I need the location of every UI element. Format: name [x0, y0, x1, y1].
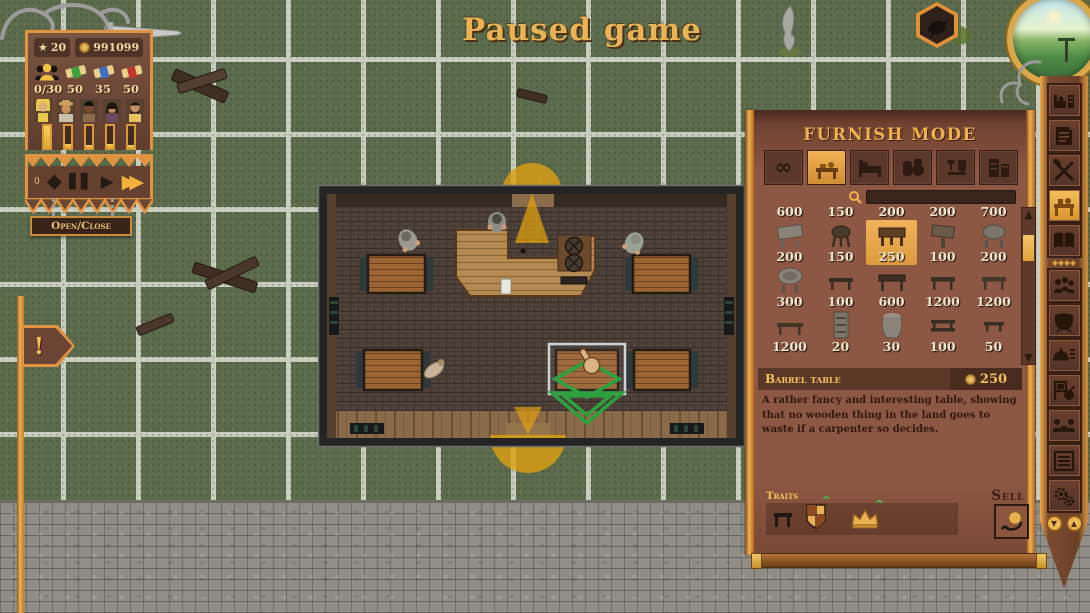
staff-energy-meter — [84, 124, 94, 150]
guests-icon[interactable] — [1047, 408, 1082, 443]
furniture-item[interactable]: 100 — [917, 310, 968, 355]
build-tools-icon[interactable] — [1047, 153, 1082, 188]
tab-storage[interactable] — [979, 150, 1018, 185]
table[interactable] — [360, 255, 433, 293]
right-toolbar: ▼ ▲ — [1040, 76, 1088, 588]
staff-portrait[interactable] — [57, 99, 75, 122]
staff-energy-meter — [126, 124, 136, 150]
furniture-item[interactable]: 200 — [764, 220, 815, 265]
blueprint-icon[interactable] — [1047, 118, 1082, 153]
search-icon — [848, 190, 862, 204]
tab-decorations[interactable] — [936, 150, 975, 185]
staff-icon[interactable] — [1047, 268, 1082, 303]
hud-speed-controls: 0 ■ ▋▋ ▶ ▶▶ — [25, 166, 153, 198]
sell-button[interactable] — [994, 504, 1029, 539]
patrons-icon — [34, 63, 60, 81]
grid-row: 300 100 600 1200 1200 — [764, 265, 1020, 310]
open-close-button[interactable]: Open/Close — [30, 216, 132, 236]
grid-row: 200 150 250 100 200 — [764, 220, 1020, 265]
grid-row: 600 150 200 200 700 — [764, 207, 1020, 220]
game-viewport: Paused game — [0, 0, 1090, 613]
table[interactable] — [625, 255, 698, 293]
sign-chains — [52, 198, 114, 216]
recipes-book-icon[interactable] — [1047, 223, 1082, 258]
silver-filigree — [990, 58, 1046, 110]
hud-banner: ★ 20 991099 — [25, 30, 153, 214]
table[interactable] — [626, 350, 698, 390]
tab-kegs[interactable] — [893, 150, 932, 185]
panel-rail-left — [745, 110, 754, 555]
furniture-item-selected[interactable]: 250 — [866, 220, 917, 265]
beer-kegs[interactable] — [558, 235, 591, 284]
coin-icon — [965, 374, 976, 385]
staff-portrait[interactable] — [80, 99, 98, 122]
toolbar-up-button[interactable]: ▲ — [1066, 515, 1083, 532]
furniture-grid: 600 150 200 200 700 — [764, 207, 1020, 365]
play-button[interactable]: ▶ — [101, 174, 114, 191]
sell-label: Sell — [982, 488, 1034, 504]
tavern-building[interactable] — [318, 185, 745, 447]
wood-debris — [514, 84, 552, 108]
furniture-item[interactable]: 100 — [815, 265, 866, 310]
trait-comfort: ^ — [805, 503, 827, 533]
furniture-item[interactable]: 150 — [815, 220, 866, 265]
staff-portrait[interactable] — [34, 99, 52, 122]
pause-button[interactable]: ▋▋ — [69, 175, 93, 189]
grid-scrollbar[interactable]: ▲ ▼ — [1021, 207, 1036, 365]
gold-box: 991099 — [75, 38, 143, 57]
patrons-count: 0/30 — [34, 82, 60, 96]
selected-item-price: 250 — [980, 372, 1007, 387]
furnish-mode-panel: FURNISH MODE ∞ — [745, 110, 1035, 568]
tab-beds[interactable] — [850, 150, 889, 185]
settings-icon[interactable] — [1047, 478, 1082, 513]
table[interactable] — [356, 350, 430, 390]
furniture-item[interactable]: 200 — [866, 207, 917, 220]
furniture-item[interactable]: 30 — [866, 310, 917, 355]
coin-icon — [79, 42, 90, 53]
furniture-item[interactable]: 50 — [968, 310, 1019, 355]
staff-energy-meter — [42, 124, 52, 150]
search-row — [764, 190, 1016, 204]
traits-bar: ^ ^ — [766, 503, 958, 535]
furniture-item[interactable]: 1200 — [917, 265, 968, 310]
menu-icon[interactable] — [1047, 338, 1082, 373]
minimap-sun — [1043, 6, 1065, 28]
furniture-item[interactable]: 1200 — [764, 310, 815, 355]
scroll-up-icon[interactable]: ▲ — [1024, 208, 1032, 221]
wall-vent — [329, 297, 339, 335]
gold-value: 991099 — [93, 41, 139, 54]
paused-game-title: Paused game — [452, 12, 712, 48]
blue-scroll-count: 35 — [90, 82, 116, 96]
category-tabs: ∞ — [764, 150, 1018, 185]
green-scroll-icon — [64, 63, 88, 81]
floor-grate — [670, 423, 704, 434]
open-close-label: Open/Close — [51, 220, 111, 232]
stop-button[interactable]: ■ — [45, 172, 64, 191]
furniture-item[interactable]: 300 — [764, 265, 815, 310]
toolbar-scroll-arrows: ▼ ▲ — [1046, 515, 1083, 532]
selected-item-name-box: Barrel table — [758, 368, 950, 390]
grid-row: 1200 20 30 100 50 — [764, 310, 1020, 355]
red-scroll-icon — [120, 63, 144, 81]
furniture-item[interactable]: 20 — [815, 310, 866, 355]
selected-item-bar: Barrel table 250 — [758, 368, 1022, 390]
traits-label: Traits — [766, 491, 798, 502]
selected-item-name: Barrel table — [765, 372, 841, 386]
furniture-item[interactable]: 1200 — [968, 265, 1019, 310]
tab-tables[interactable] — [807, 150, 846, 185]
alert-flag[interactable]: ! — [21, 325, 75, 367]
green-scroll-count: 50 — [62, 82, 88, 96]
raven-icon — [923, 12, 951, 38]
panel-bottom-rod — [752, 553, 1046, 568]
wall-vent — [724, 297, 734, 335]
events-icon[interactable] — [1047, 373, 1082, 408]
search-input[interactable] — [866, 190, 1016, 204]
trait-table — [772, 505, 796, 533]
level-value: 20 — [51, 41, 66, 54]
alert-exclamation: ! — [24, 333, 54, 360]
star-icon: ★ — [38, 42, 48, 53]
furniture-item[interactable]: 600 — [866, 265, 917, 310]
tab-all-items[interactable]: ∞ — [764, 150, 803, 185]
red-scroll-count: 50 — [118, 82, 144, 96]
panel-body: FURNISH MODE ∞ — [754, 110, 1026, 555]
selected-item-description: A rather fancy and interesting table, sh… — [762, 394, 1018, 438]
wood-debris — [132, 308, 180, 342]
raven-badge[interactable] — [916, 2, 958, 48]
scroll-down-icon[interactable]: ▼ — [1024, 351, 1032, 364]
trait-up-indicator: ^ — [822, 494, 831, 507]
speed-counter: 0 — [34, 177, 40, 187]
staff-portrait[interactable] — [126, 99, 144, 122]
staff-energy-meter — [63, 124, 73, 150]
ledger-icon[interactable] — [1047, 443, 1082, 478]
scrollbar-thumb[interactable] — [1023, 235, 1034, 261]
toolbar-divider-ornament — [1053, 258, 1075, 268]
minimap-tree — [1065, 40, 1068, 62]
blue-scroll-icon — [92, 63, 116, 81]
wood-debris — [186, 246, 274, 308]
bird-statue — [776, 4, 804, 58]
furniture-item[interactable]: 600 — [764, 207, 815, 220]
fast-forward-button[interactable]: ▶▶ — [122, 173, 144, 192]
staff-portrait[interactable] — [103, 99, 121, 122]
trait-up-indicator: ^ — [875, 498, 884, 511]
hud-stats: ★ 20 991099 — [25, 30, 153, 150]
furniture-item[interactable]: 700 — [968, 207, 1019, 220]
alert-flag-face: ! — [24, 328, 72, 364]
rooms-icon[interactable] — [1047, 83, 1082, 118]
furniture-item[interactable]: 200 — [917, 207, 968, 220]
trait-luxury: ^ — [850, 507, 880, 533]
furniture-item[interactable]: 200 — [968, 220, 1019, 265]
level-box: ★ 20 — [34, 38, 70, 57]
furnish-icon[interactable] — [1047, 188, 1082, 223]
selected-item-price-box: 250 — [950, 368, 1022, 390]
furniture-item[interactable]: 100 — [917, 220, 968, 265]
furnish-mode-title: FURNISH MODE — [754, 125, 1026, 144]
cauldron-icon[interactable] — [1047, 303, 1082, 338]
tavern-interior — [318, 185, 745, 447]
floor-grate — [350, 423, 384, 434]
staff-energy-meter — [105, 124, 115, 150]
toolbar-down-button[interactable]: ▼ — [1046, 515, 1063, 532]
furniture-item[interactable]: 150 — [815, 207, 866, 220]
